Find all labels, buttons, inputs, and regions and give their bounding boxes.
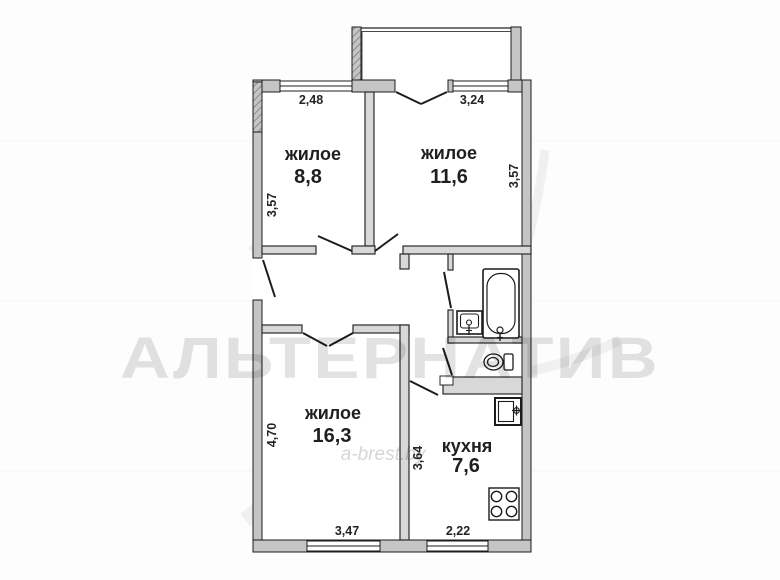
- room1-area: 8,8: [294, 166, 322, 188]
- kitchen-sink-icon: [495, 398, 521, 425]
- room1-label: жилое: [284, 144, 341, 164]
- dim-room3-height: 4,70: [265, 423, 279, 447]
- dim-room2-height: 3,57: [507, 164, 521, 188]
- balcony-post-left: [352, 27, 361, 81]
- watermark-brand: АЛЬТЕРНАТИВ: [120, 326, 660, 391]
- dim-room3-width: 3,47: [335, 524, 359, 538]
- floorplan-image: жилое 8,8 жилое 11,6 жилое 16,3 кухня 7,…: [0, 0, 780, 580]
- dim-room1-width: 2,48: [299, 93, 323, 107]
- left-wall-hatch: [253, 82, 262, 132]
- stove-icon: [489, 488, 519, 520]
- room3-label: жилое: [304, 403, 361, 423]
- kitchen-area: 7,6: [452, 455, 480, 477]
- balcony: [352, 27, 521, 82]
- dim-room1-height: 3,57: [265, 193, 279, 217]
- room2-area: 11,6: [430, 166, 468, 188]
- floorplan-svg: жилое 8,8 жилое 11,6 жилое 16,3 кухня 7,…: [0, 0, 780, 580]
- room2-label: жилое: [420, 143, 477, 163]
- dim-room2-width: 3,24: [460, 93, 484, 107]
- balcony-post-right: [511, 27, 521, 81]
- dim-kitchen-width: 2,22: [446, 524, 470, 538]
- watermark-site: a-brest.by: [341, 444, 427, 465]
- kitchen-label: кухня: [442, 436, 493, 456]
